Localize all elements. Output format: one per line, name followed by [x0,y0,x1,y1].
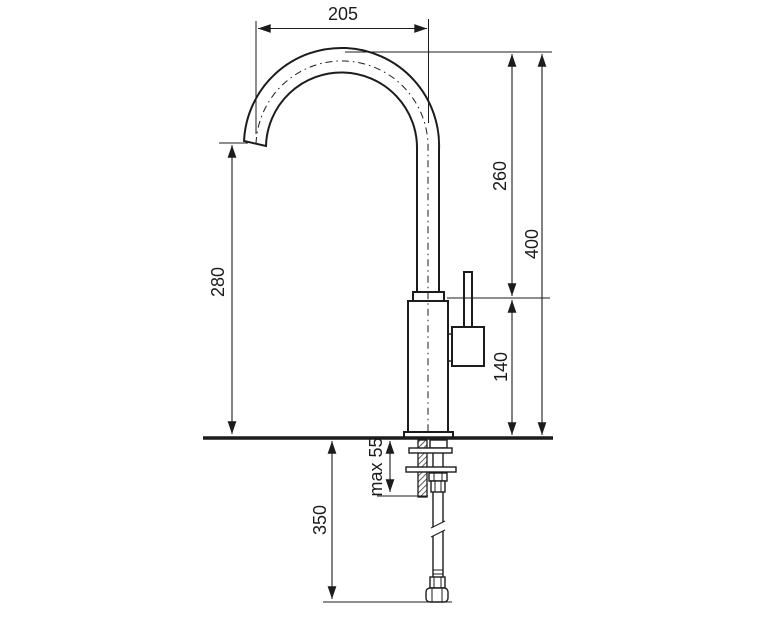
faucet-dimension-diagram: 205 260 400 280 140 max 55 350 [0,0,758,620]
hose-mid-crimp [431,481,445,492]
hose-end-crimp [430,577,445,588]
mounting-washer-lower [406,467,456,472]
hose-end-nut [426,588,448,602]
dim-label-outlet-height: 280 [208,267,228,297]
dim-label-hose-length: 350 [310,505,330,535]
dim-label-spout-reach: 205 [328,4,358,24]
faucet-lever-rod [464,272,472,328]
faucet-lever-handle [452,327,484,366]
drawing-background [0,0,758,620]
mounting-washer-upper [409,448,452,453]
dim-label-max-thickness: max 55 [366,437,386,496]
dim-label-body-height: 140 [491,352,511,382]
hose-mid-nut [429,473,447,481]
technical-drawing: 205 260 400 280 140 max 55 350 [0,0,758,620]
dim-label-total-height: 400 [522,229,542,259]
hose-top-fitting [430,440,447,448]
dim-label-spout-height: 260 [490,161,510,191]
